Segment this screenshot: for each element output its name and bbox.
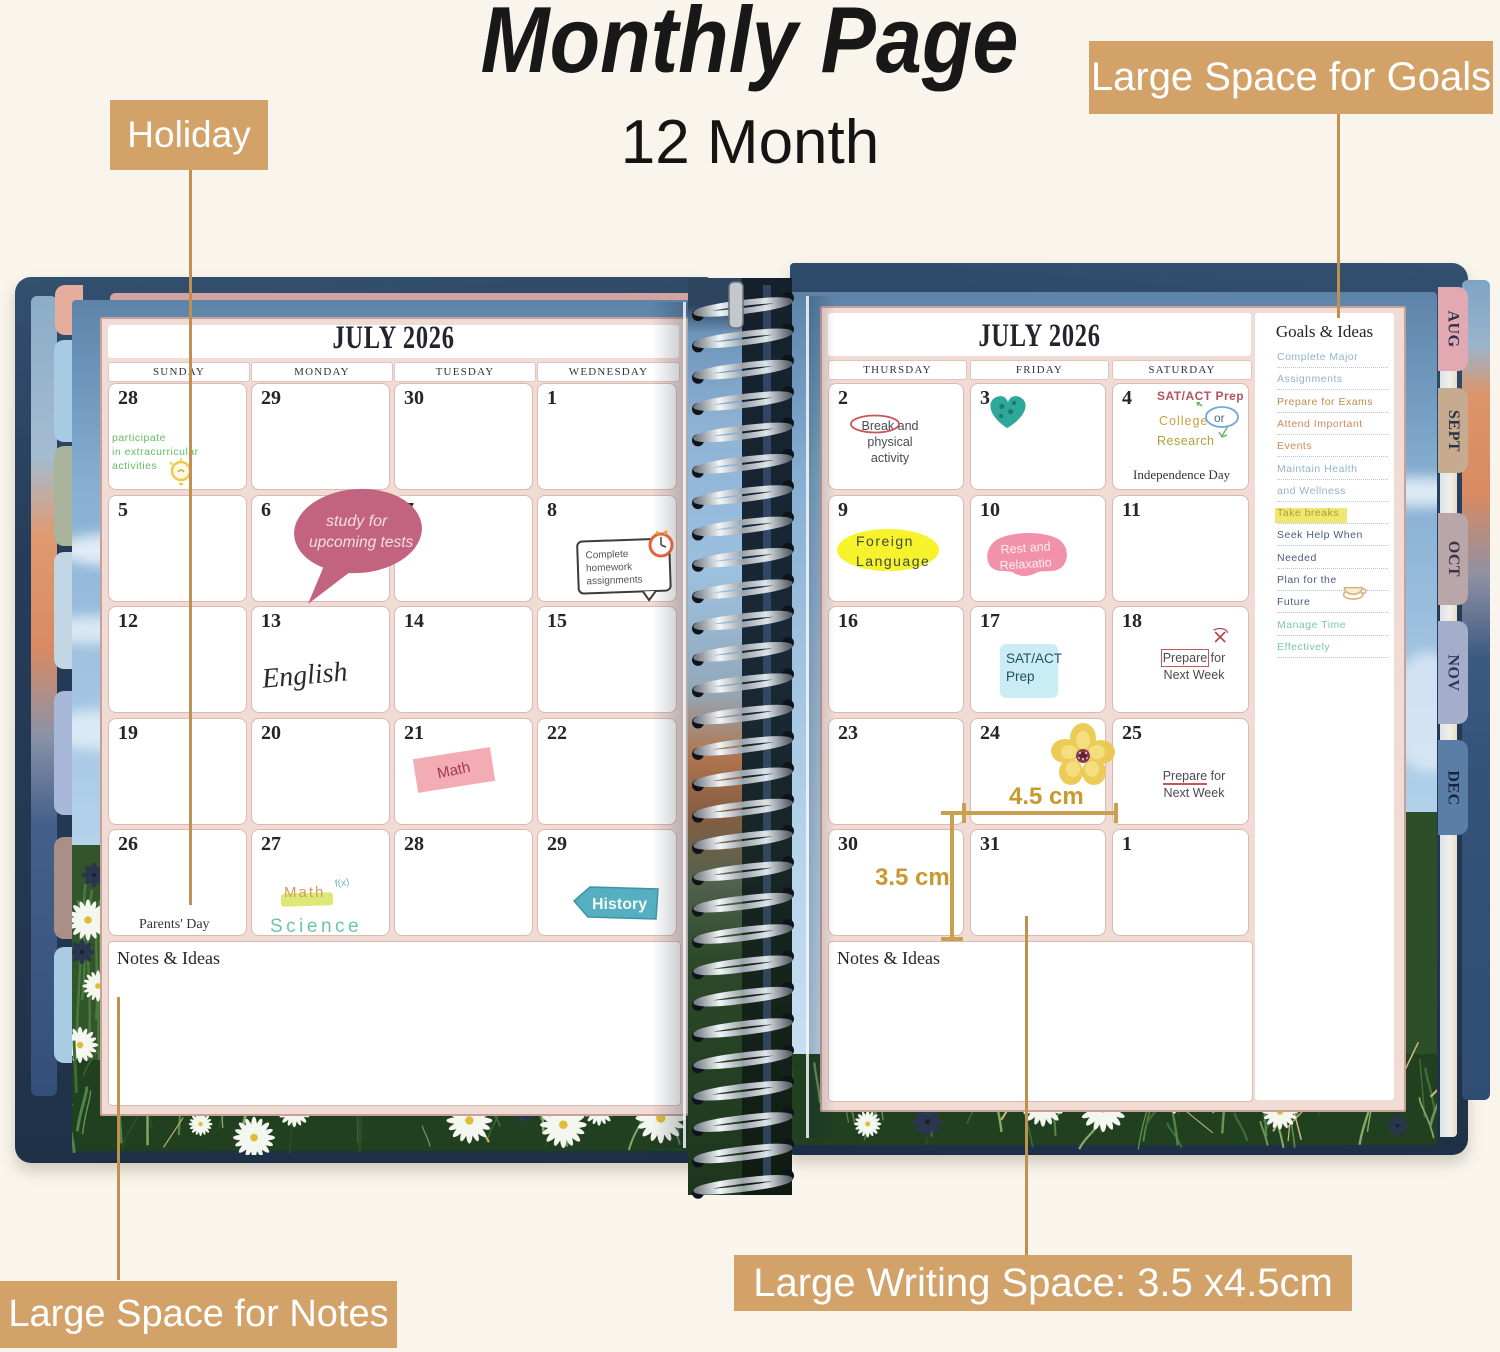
svg-text:study for: study for (326, 513, 388, 530)
svg-text:homework: homework (586, 562, 633, 575)
svg-text:or: or (1214, 411, 1225, 425)
svg-text:Complete: Complete (585, 549, 629, 562)
svg-text:History: History (592, 896, 647, 913)
svg-text:upcoming tests: upcoming tests (309, 534, 413, 551)
svg-text:assignments: assignments (586, 574, 642, 587)
